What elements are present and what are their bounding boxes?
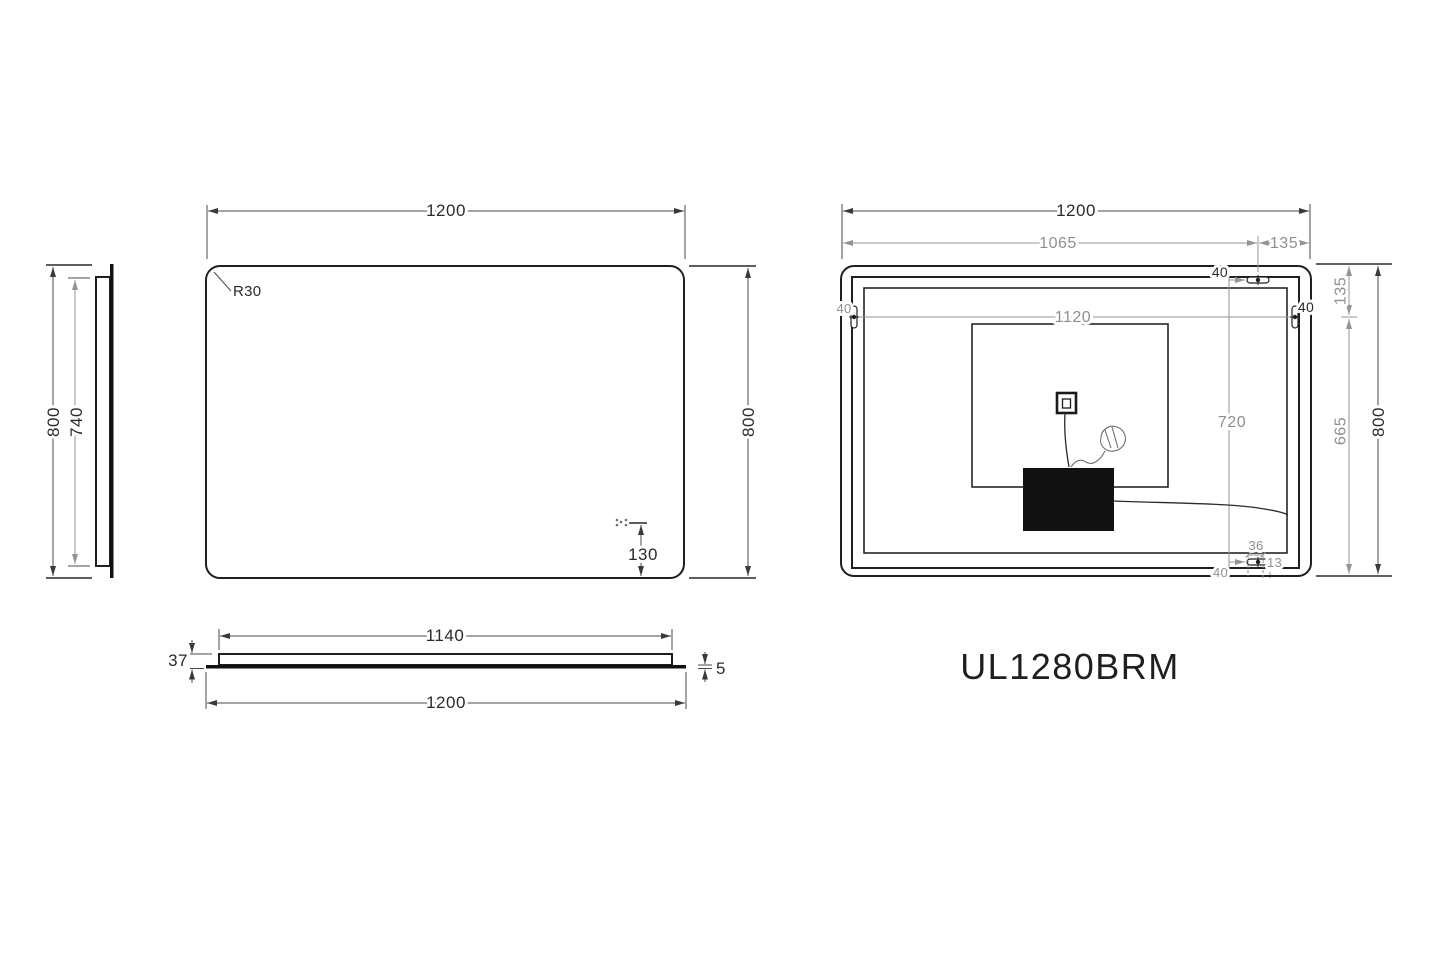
dim-label-side-800: 800: [44, 407, 63, 437]
frontview-dim-width: 1200: [207, 201, 685, 259]
rearview-dim-hanger-span: 1065: [843, 235, 1258, 252]
led-driver-box: [1023, 468, 1114, 531]
technical-drawing-sheet: 800 740 1200 R30 800: [0, 0, 1445, 954]
side-glass: [110, 264, 114, 578]
sideview-dim-overall-height: 800: [44, 267, 63, 576]
rearview-dim-top-margin: 135: [1333, 266, 1350, 315]
dim-label-5: 5: [716, 659, 726, 678]
dim-label-37: 37: [168, 651, 188, 670]
dim-label-rear-1200: 1200: [1056, 201, 1096, 220]
rearview-dim-bottom-section: 665: [1333, 319, 1350, 574]
bottomview-dim-panel-width: 1140: [219, 626, 672, 650]
bottomview-dim-thickness: 37: [168, 640, 212, 683]
sideview-dim-panel-height: 740: [67, 280, 86, 564]
dim-label-front-1200: 1200: [426, 201, 466, 220]
dim-label-bottom-40: 40: [1213, 565, 1228, 580]
bottomview-dim-overall-width: 1200: [206, 672, 686, 712]
junction-box-icon: [1057, 393, 1076, 413]
front-view: 1200 R30 800 130: [206, 201, 758, 578]
bottom-view: 1140 1200 37 5: [168, 626, 726, 712]
rearview-dim-height: 800: [1369, 266, 1388, 574]
dim-label-665: 665: [1333, 417, 1350, 445]
dim-label-1140: 1140: [426, 626, 465, 645]
dim-label-36: 36: [1248, 538, 1263, 553]
bottom-glass: [206, 665, 686, 669]
frontview-dim-height: 800: [689, 266, 758, 578]
dim-label-720: 720: [1218, 414, 1246, 431]
bottom-backpanel: [219, 654, 672, 665]
dim-label-left-40: 40: [836, 301, 851, 316]
dim-label-13: 13: [1267, 555, 1282, 570]
dim-label-rear-800: 800: [1369, 407, 1388, 437]
rearview-dim-hanger-right-margin: 135: [1259, 235, 1309, 252]
dim-label-130: 130: [628, 545, 658, 564]
dim-label-right-40: 40: [1298, 299, 1314, 315]
bottomview-dim-glass: 5: [698, 652, 726, 682]
dim-label-135-right: 135: [1333, 277, 1350, 305]
front-mirror-body: [206, 266, 684, 578]
dim-label-top-40: 40: [1212, 264, 1228, 280]
dim-label-1120: 1120: [1055, 309, 1091, 326]
dim-label-front-800: 800: [739, 407, 758, 437]
side-backpanel: [96, 277, 110, 566]
dim-label-side-740: 740: [67, 407, 86, 437]
side-view: 800 740: [44, 264, 114, 578]
rearview-dim-hanger-right-offset: 40: [1298, 299, 1314, 315]
rear-view: 1120 720 40: [836, 201, 1392, 580]
dim-label-1065: 1065: [1039, 235, 1077, 252]
rearview-dim-hanger-left-offset: 40: [836, 301, 852, 316]
keyhole-bracket-top-icon: [1247, 275, 1269, 285]
dim-label-r30: R30: [233, 283, 261, 300]
dim-label-135-top: 135: [1270, 235, 1298, 252]
keyhole-bracket-bottom-icon: [1247, 557, 1269, 567]
model-number-label: UL1280BRM: [960, 646, 1180, 687]
dim-label-bottom-1200: 1200: [426, 693, 466, 712]
rearview-dim-slot-side: 13: [1267, 555, 1282, 570]
